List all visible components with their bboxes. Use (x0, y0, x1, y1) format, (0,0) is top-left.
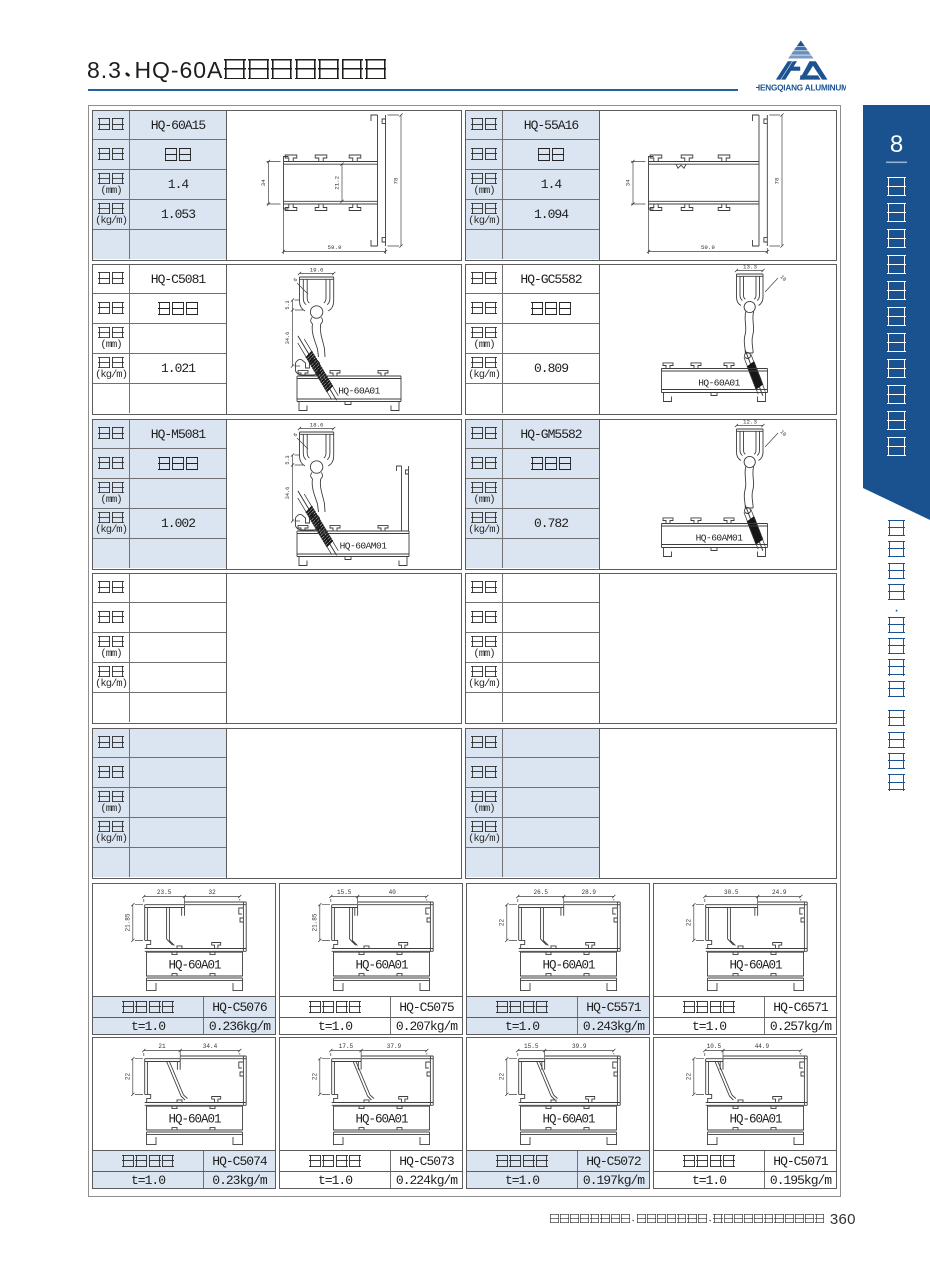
svg-text:HQ-60AM01: HQ-60AM01 (340, 541, 388, 552)
svg-text:HQ-60A01: HQ-60A01 (168, 1113, 221, 1127)
svg-text:6: 6 (293, 432, 300, 438)
svg-text:30.5: 30.5 (724, 889, 739, 896)
svg-text:37.9: 37.9 (387, 1043, 402, 1050)
svg-text:26.5: 26.5 (534, 889, 549, 896)
svg-text:39.9: 39.9 (572, 1043, 587, 1050)
svg-text:15.5: 15.5 (337, 889, 352, 896)
svg-text:HQ-60A01: HQ-60A01 (355, 959, 408, 973)
svg-text:HQ-60A01: HQ-60A01 (698, 378, 740, 389)
svg-text:59.9: 59.9 (328, 244, 342, 251)
svg-text:21: 21 (158, 1043, 166, 1050)
svg-text:21.2: 21.2 (334, 175, 341, 189)
svg-text:34.4: 34.4 (203, 1043, 218, 1050)
svg-text:34: 34 (260, 179, 267, 186)
svg-text:HENGQIANG ALUMINUM: HENGQIANG ALUMINUM (756, 84, 846, 93)
svg-text:HQ-60A01: HQ-60A01 (338, 386, 380, 397)
svg-text:21.85: 21.85 (124, 913, 131, 931)
svg-text:18.6: 18.6 (310, 422, 324, 429)
svg-text:34.6: 34.6 (285, 332, 291, 344)
svg-text:24.9: 24.9 (772, 889, 787, 896)
svg-text:22: 22 (498, 1073, 505, 1081)
svg-text:59.9: 59.9 (701, 244, 715, 251)
svg-text:HQ-60A01: HQ-60A01 (168, 959, 221, 973)
svg-text:22: 22 (124, 1073, 131, 1081)
svg-text:78: 78 (774, 177, 781, 184)
svg-text:HQ-60A01: HQ-60A01 (542, 1113, 595, 1127)
svg-text:15.5: 15.5 (524, 1043, 539, 1050)
svg-text:10.5: 10.5 (707, 1043, 722, 1050)
svg-text:22: 22 (685, 919, 692, 927)
svg-text:10: 10 (779, 429, 788, 438)
svg-text:40: 40 (389, 889, 397, 896)
svg-text:10: 10 (779, 274, 788, 283)
svg-text:34.6: 34.6 (285, 487, 291, 499)
svg-text:HQ-60A01: HQ-60A01 (729, 959, 782, 973)
svg-text:34: 34 (625, 179, 632, 186)
svg-text:17.5: 17.5 (339, 1043, 354, 1050)
svg-text:8: 8 (890, 131, 903, 158)
svg-text:13.3: 13.3 (743, 265, 757, 271)
svg-text:22: 22 (311, 1073, 318, 1081)
svg-text:78: 78 (393, 177, 400, 184)
svg-text:6: 6 (293, 277, 300, 283)
svg-text:28.9: 28.9 (582, 889, 597, 896)
svg-text:HQ-60AM01: HQ-60AM01 (696, 533, 744, 544)
svg-text:HQ-60A01: HQ-60A01 (729, 1113, 782, 1127)
svg-text:22: 22 (685, 1073, 692, 1081)
svg-text:HQ-60A01: HQ-60A01 (355, 1113, 408, 1127)
svg-text:12.3: 12.3 (743, 420, 757, 426)
svg-text:44.9: 44.9 (755, 1043, 770, 1050)
svg-text:HQ-60A01: HQ-60A01 (542, 959, 595, 973)
svg-text:21.85: 21.85 (311, 913, 318, 931)
svg-text:23.5: 23.5 (157, 889, 172, 896)
svg-text:5.3: 5.3 (285, 300, 291, 309)
svg-text:19.6: 19.6 (310, 267, 324, 274)
svg-text:5.3: 5.3 (285, 455, 291, 464)
svg-text:32: 32 (209, 889, 217, 896)
svg-text:22: 22 (498, 919, 505, 927)
